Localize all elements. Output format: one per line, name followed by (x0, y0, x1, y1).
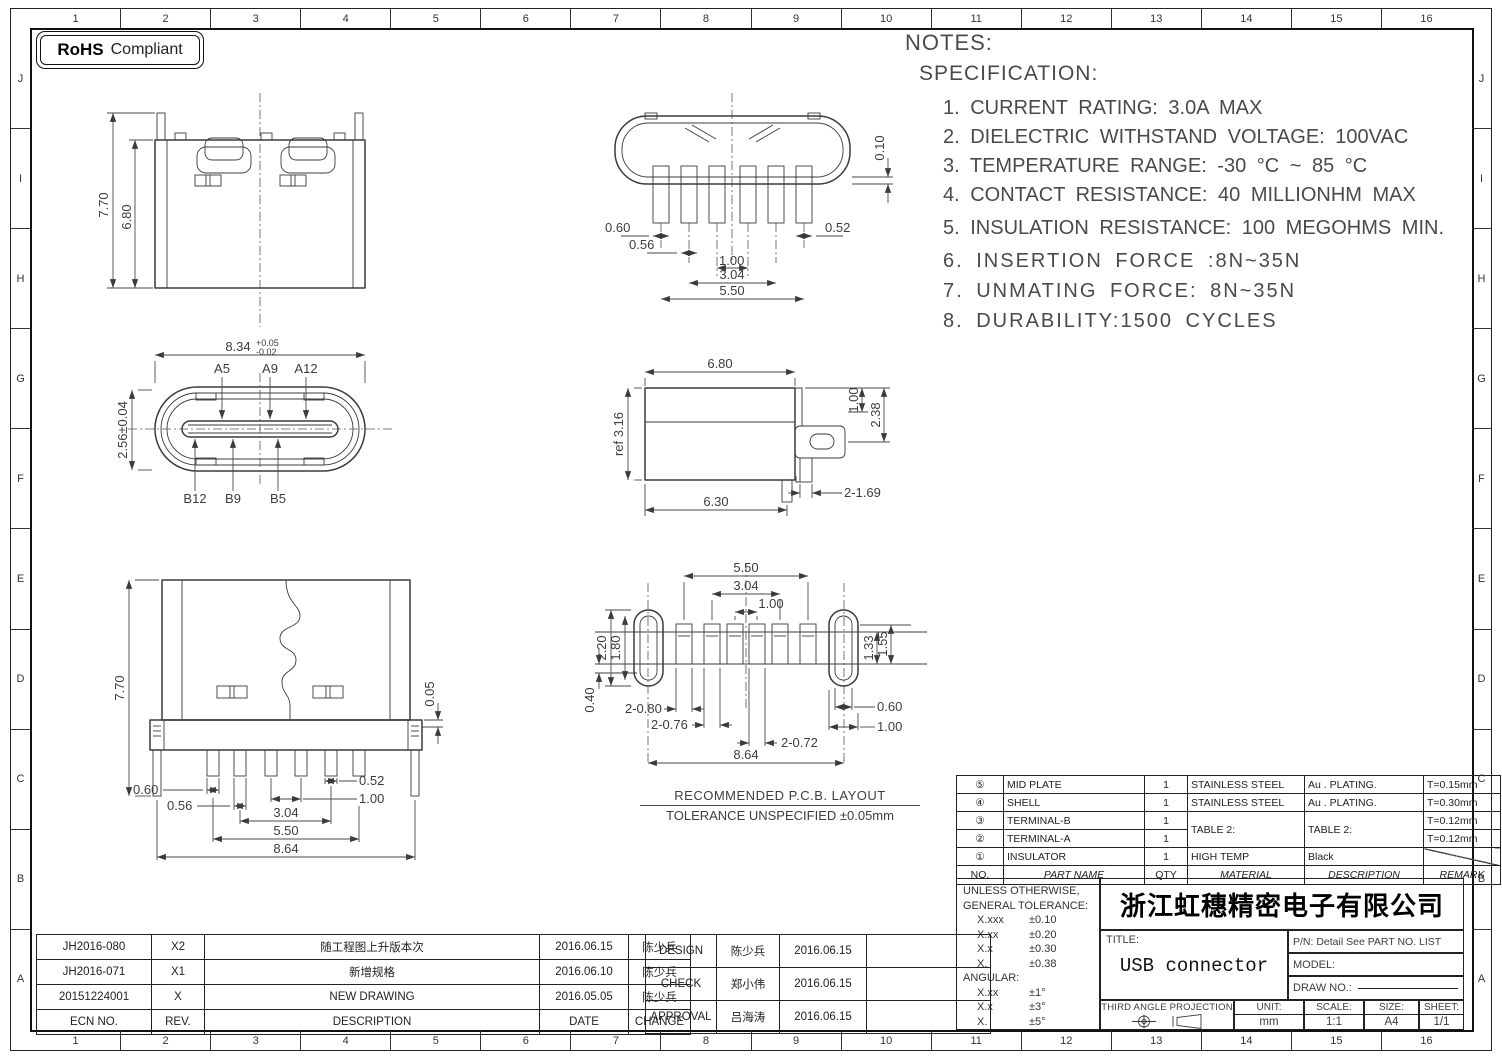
grid-label: 15 (1292, 1031, 1382, 1050)
face-view-drawing: 8.34 +0.05 -0.02 2.56±0.04 A5 A9 A12 B12… (110, 335, 410, 510)
spec-item: 3. TEMPERATURE RANGE: -30 °C ~ 85 °C (943, 152, 1480, 181)
dimension-label: 2.20 (594, 635, 609, 660)
specification-title: SPECIFICATION: (919, 62, 1480, 86)
grid-label: G (11, 329, 30, 429)
approval-date: 2016.06.15 (780, 1001, 867, 1034)
sheet-label: SHEET: (1420, 1001, 1463, 1015)
tolerance-key: X.xxx (977, 913, 1029, 928)
dimension-label: 1.55 (875, 631, 890, 656)
approval-role: DESIGN (646, 935, 717, 968)
tolerance-value: ±5° (1029, 1015, 1046, 1030)
grid-label: B (11, 830, 30, 930)
unit-value: mm (1235, 1015, 1303, 1029)
pcb-caption-line2: TOLERANCE UNSPECIFIED ±0.05mm (640, 806, 920, 823)
revision-description: 随工程图上升版本次 (205, 935, 540, 960)
approval-date: 2016.06.15 (780, 935, 867, 968)
part-material: STAINLESS STEEL (1188, 776, 1305, 794)
spec-item: 6. INSERTION FORCE :8N~35N (943, 246, 1480, 276)
draw-no-blank-line (1358, 988, 1458, 989)
grid-label: J (11, 29, 30, 129)
revision-header-description: DESCRIPTION (205, 1010, 540, 1035)
revision-date: 2016.06.15 (540, 935, 629, 960)
grid-label: 12 (1022, 1031, 1112, 1050)
part-description: Black (1305, 848, 1424, 866)
revision-description: 新增规格 (205, 960, 540, 985)
dimension-label: 3.04 (719, 267, 744, 282)
part-remark: T=0.12mm (1424, 812, 1501, 830)
grid-label: 9 (752, 9, 842, 28)
dimension-label: 3.04 (273, 805, 298, 820)
spec-item: 2. DIELECTRIC WITHSTAND VOLTAGE: 100VAC (943, 123, 1480, 152)
front-view-drawing: 7.70 0.05 0.60 0.56 0.52 1.00 3.04 5.50 … (105, 558, 445, 868)
draw-no-label: DRAW NO.: (1293, 982, 1352, 994)
grid-label: 16 (1382, 9, 1471, 28)
part-number-cell: P/N: Detail See PART NO. LIST (1288, 930, 1464, 953)
rohs-label-rest: Compliant (111, 41, 183, 59)
tolerance-value: ±0.38 (1029, 957, 1056, 972)
grid-label: 10 (842, 9, 932, 28)
tolerance-value: ±0.30 (1029, 942, 1056, 957)
title-cell: TITLE: USB connector (1100, 930, 1288, 1000)
dimension-label: 2-0.76 (651, 717, 688, 732)
dimension-label: 6.80 (119, 204, 134, 229)
grid-label: 6 (481, 9, 571, 28)
revision-ecn: JH2016-080 (37, 935, 152, 960)
revision-header-date: DATE (540, 1010, 629, 1035)
tolerance-line: GENERAL TOLERANCE: (963, 899, 1093, 914)
revision-date: 2016.06.10 (540, 960, 629, 985)
pin-label: B5 (270, 491, 286, 506)
revision-row: JH2016-080 X2 随工程图上升版本次 2016.06.15 陈少兵 (37, 935, 691, 960)
tolerance-line: UNLESS OTHERWISE, (963, 884, 1093, 899)
dimension-label: 6.80 (707, 356, 732, 371)
part-qty: 1 (1145, 830, 1188, 848)
approval-row: DESIGN 陈少兵 2016.06.15 (646, 935, 991, 968)
scale-cell: SCALE: 1:1 (1304, 1000, 1364, 1030)
grid-label: 5 (391, 9, 481, 28)
size-cell: SIZE: A4 (1364, 1000, 1419, 1030)
revision-row: 20151224001 X NEW DRAWING 2016.05.05 陈少兵 (37, 985, 691, 1010)
scale-label: SCALE: (1305, 1001, 1363, 1015)
dimension-label: 0.56 (167, 798, 192, 813)
revision-rev: X2 (152, 935, 205, 960)
revision-ecn: JH2016-071 (37, 960, 152, 985)
grid-label: 13 (1112, 9, 1202, 28)
dimension-label: 0.05 (422, 681, 437, 706)
grid-label: A (11, 930, 30, 1029)
grid-label: E (1472, 529, 1491, 629)
dimension-label: 2.56±0.04 (115, 401, 130, 459)
pcb-caption: RECOMMENDED P.C.B. LAYOUT TOLERANCE UNSP… (640, 788, 920, 823)
scale-value: 1:1 (1305, 1015, 1363, 1029)
part-row: ③ TERMINAL-B 1 TABLE 2: TABLE 2: T=0.12m… (957, 812, 1501, 830)
dimension-label: 0.52 (359, 773, 384, 788)
approval-name: 陈少兵 (717, 935, 780, 968)
dimension-label: 3.04 (733, 578, 758, 593)
grid-label: 11 (932, 9, 1022, 28)
part-no: ② (957, 830, 1004, 848)
dimension-label: 0.60 (133, 782, 158, 797)
part-name: SHELL (1004, 794, 1145, 812)
part-name: INSULATOR (1004, 848, 1145, 866)
revision-header-rev: REV. (152, 1010, 205, 1035)
grid-columns-top: 12345678910111213141516 (31, 9, 1471, 28)
notes-block: NOTES: SPECIFICATION: 1. CURRENT RATING:… (905, 30, 1480, 336)
pin-label: A12 (294, 361, 317, 376)
grid-label: 7 (571, 9, 661, 28)
approval-blank (867, 968, 991, 1001)
revision-header-row: ECN NO. REV. DESCRIPTION DATE CHANGE (37, 1010, 691, 1035)
part-qty: 1 (1145, 776, 1188, 794)
dimension-label: 0.60 (605, 220, 630, 235)
first-angle-symbol-icon (1131, 1014, 1157, 1029)
approval-date: 2016.06.15 (780, 968, 867, 1001)
tolerance-value: ±0.10 (1029, 913, 1056, 928)
grid-label: F (11, 429, 30, 529)
spec-item: 1. CURRENT RATING: 3.0A MAX (943, 94, 1480, 123)
grid-label: D (11, 630, 30, 730)
part-row: ⑤ MID PLATE 1 STAINLESS STEEL Au . PLATI… (957, 776, 1501, 794)
model-cell: MODEL: (1288, 953, 1464, 976)
dimension-label: 1.00 (719, 253, 744, 268)
tolerance-value: ±0.20 (1029, 928, 1056, 943)
dimension-label: 0.56 (629, 237, 654, 252)
rohs-badge: RoHS Compliant (36, 31, 204, 69)
rear-view-drawing: 7.70 6.80 (75, 85, 385, 335)
grid-label: 15 (1292, 9, 1382, 28)
grid-label: D (1472, 630, 1491, 730)
dimension-label: 7.70 (96, 192, 111, 217)
grid-label: E (11, 529, 30, 629)
dimension-label: 1.80 (608, 635, 623, 660)
company-name: 浙江虹穗精密电子有限公司 (1100, 878, 1464, 930)
notes-title: NOTES: (905, 30, 1480, 56)
grid-label: 14 (1202, 1031, 1292, 1050)
grid-label: 14 (1202, 9, 1292, 28)
approval-table: DESIGN 陈少兵 2016.06.15 CHECK 郑小伟 2016.06.… (645, 934, 991, 1034)
part-name: TERMINAL-A (1004, 830, 1145, 848)
dimension-label: 1.00 (359, 791, 384, 806)
grid-rows-left: JIHGFEDCBA (11, 29, 30, 1029)
size-label: SIZE: (1365, 1001, 1418, 1015)
part-remark: T=0.15mm (1424, 776, 1501, 794)
grid-label: 1 (31, 9, 121, 28)
grid-label: H (11, 229, 30, 329)
tolerance-value: ±3° (1029, 1000, 1046, 1015)
approval-blank (867, 1001, 991, 1034)
part-remark: T=0.30mm (1424, 794, 1501, 812)
draw-no-cell: DRAW NO.: (1288, 976, 1464, 1000)
pcb-caption-line1: RECOMMENDED P.C.B. LAYOUT (640, 788, 920, 806)
rohs-badge-inner: RoHS Compliant (40, 35, 200, 65)
part-remark-slash (1424, 848, 1501, 866)
drawing-sheet: 12345678910111213141516 1234567891011121… (0, 0, 1502, 1059)
part-no: ③ (957, 812, 1004, 830)
drawing-title: USB connector (1101, 955, 1287, 977)
dimension-label: 5.50 (273, 823, 298, 838)
dimension-label: 7.70 (112, 675, 127, 700)
grid-label: G (1472, 329, 1491, 429)
dimension-label: 2.38 (868, 402, 883, 427)
dimension-label: 8.64 (733, 747, 758, 762)
grid-label: 4 (301, 9, 391, 28)
rohs-label-bold: RoHS (57, 40, 103, 60)
grid-label: 13 (1112, 1031, 1202, 1050)
sheet-cell: SHEET: 1/1 (1419, 1000, 1464, 1030)
title-block: ⑤ MID PLATE 1 STAINLESS STEEL Au . PLATI… (956, 775, 1464, 1030)
grid-label: 8 (661, 9, 751, 28)
tolerance-value: ±1° (1029, 986, 1046, 1001)
part-qty: 1 (1145, 812, 1188, 830)
spec-item: 4. CONTACT RESISTANCE: 40 MILLIONHM MAX (943, 181, 1480, 210)
dimension-label: 1.33 (861, 635, 876, 660)
part-name: MID PLATE (1004, 776, 1145, 794)
approval-role: APPROVAL (646, 1001, 717, 1034)
dimension-label: 2-0.72 (781, 735, 818, 750)
sheet-value: 1/1 (1420, 1015, 1463, 1029)
revision-description: NEW DRAWING (205, 985, 540, 1010)
part-no: ④ (957, 794, 1004, 812)
part-remark: T=0.12mm (1424, 830, 1501, 848)
pin-label: A9 (262, 361, 278, 376)
title-label: TITLE: (1106, 934, 1139, 946)
spec-item: 8. DURABILITY:1500 CYCLES (943, 306, 1480, 336)
part-material: TABLE 2: (1188, 812, 1305, 848)
parts-table: ⑤ MID PLATE 1 STAINLESS STEEL Au . PLATI… (956, 775, 1501, 885)
part-name: TERMINAL-B (1004, 812, 1145, 830)
pin-label: B12 (183, 491, 206, 506)
dimension-label: ref 3.16 (611, 412, 626, 456)
third-angle-cone-icon (1169, 1014, 1203, 1029)
dimension-label: 8.34 (225, 339, 250, 354)
dimension-label: 0.60 (877, 699, 902, 714)
part-no: ① (957, 848, 1004, 866)
dimension-label: 5.50 (733, 560, 758, 575)
revision-rev: X (152, 985, 205, 1010)
dimension-label: 0.10 (872, 135, 887, 160)
grid-label: 3 (211, 9, 301, 28)
projection-label: THIRD ANGLE PROJECTION (1101, 1002, 1233, 1013)
grid-label: 2 (121, 9, 211, 28)
grid-label: 16 (1382, 1031, 1471, 1050)
dimension-label: 6.30 (703, 494, 728, 509)
dimension-label: 0.52 (825, 220, 850, 235)
specification-list: 1. CURRENT RATING: 3.0A MAX 2. DIELECTRI… (905, 94, 1480, 336)
spec-item: 7. UNMATING FORCE: 8N~35N (943, 276, 1480, 306)
side-view-drawing: 6.80 ref 3.16 1.00 2.38 6.30 2-1.69 (610, 350, 910, 525)
size-value: A4 (1365, 1015, 1418, 1029)
bottom-view-drawing: 0.10 0.60 0.56 1.00 0.52 3.04 5.50 (585, 88, 905, 303)
approval-blank (867, 935, 991, 968)
part-qty: 1 (1145, 794, 1188, 812)
unit-label: UNIT: (1235, 1001, 1303, 1015)
part-description: TABLE 2: (1305, 812, 1424, 848)
grid-label: C (11, 730, 30, 830)
approval-name: 吕海涛 (717, 1001, 780, 1034)
pin-label: A5 (214, 361, 230, 376)
grid-label: I (11, 129, 30, 229)
dimension-label: 1.00 (846, 387, 861, 412)
part-qty: 1 (1145, 848, 1188, 866)
part-material: HIGH TEMP (1188, 848, 1305, 866)
part-row: ① INSULATOR 1 HIGH TEMP Black (957, 848, 1501, 866)
grid-label: A (1472, 930, 1491, 1029)
part-material: STAINLESS STEEL (1188, 794, 1305, 812)
revision-date: 2016.05.05 (540, 985, 629, 1010)
revision-table: JH2016-080 X2 随工程图上升版本次 2016.06.15 陈少兵 J… (36, 934, 691, 1035)
revision-header-ecn: ECN NO. (37, 1010, 152, 1035)
dimension-label: 0.40 (582, 687, 597, 712)
projection-cell: THIRD ANGLE PROJECTION (1100, 1000, 1234, 1030)
revision-rev: X1 (152, 960, 205, 985)
dimension-label: 1.00 (877, 719, 902, 734)
dimension-label: 1.00 (758, 596, 783, 611)
projection-symbols (1101, 1013, 1233, 1029)
part-row: ④ SHELL 1 STAINLESS STEEL Au . PLATING. … (957, 794, 1501, 812)
grid-label: 12 (1022, 9, 1112, 28)
revision-ecn: 20151224001 (37, 985, 152, 1010)
dimension-label: 2-1.69 (844, 485, 881, 500)
dimension-label: 5.50 (719, 283, 744, 298)
dimension-label: 2-0.80 (625, 701, 662, 716)
approval-row: APPROVAL 吕海涛 2016.06.15 (646, 1001, 991, 1034)
part-no: ⑤ (957, 776, 1004, 794)
pcb-layout-drawing: 5.50 3.04 1.00 2.20 1.80 0.40 2-0.80 2-0… (575, 548, 965, 788)
part-description: Au . PLATING. (1305, 776, 1424, 794)
dimension-tolerance: -0.02 (256, 347, 277, 357)
part-description: Au . PLATING. (1305, 794, 1424, 812)
approval-role: CHECK (646, 968, 717, 1001)
approval-row: CHECK 郑小伟 2016.06.15 (646, 968, 991, 1001)
spec-item: 5. INSULATION RESISTANCE: 100 MEGOHMS MI… (943, 210, 1480, 246)
approval-name: 郑小伟 (717, 968, 780, 1001)
grid-label: F (1472, 429, 1491, 529)
pin-label: B9 (225, 491, 241, 506)
dimension-label: 8.64 (273, 841, 298, 856)
revision-row: JH2016-071 X1 新增规格 2016.06.10 陈少兵 (37, 960, 691, 985)
unit-cell: UNIT: mm (1234, 1000, 1304, 1030)
